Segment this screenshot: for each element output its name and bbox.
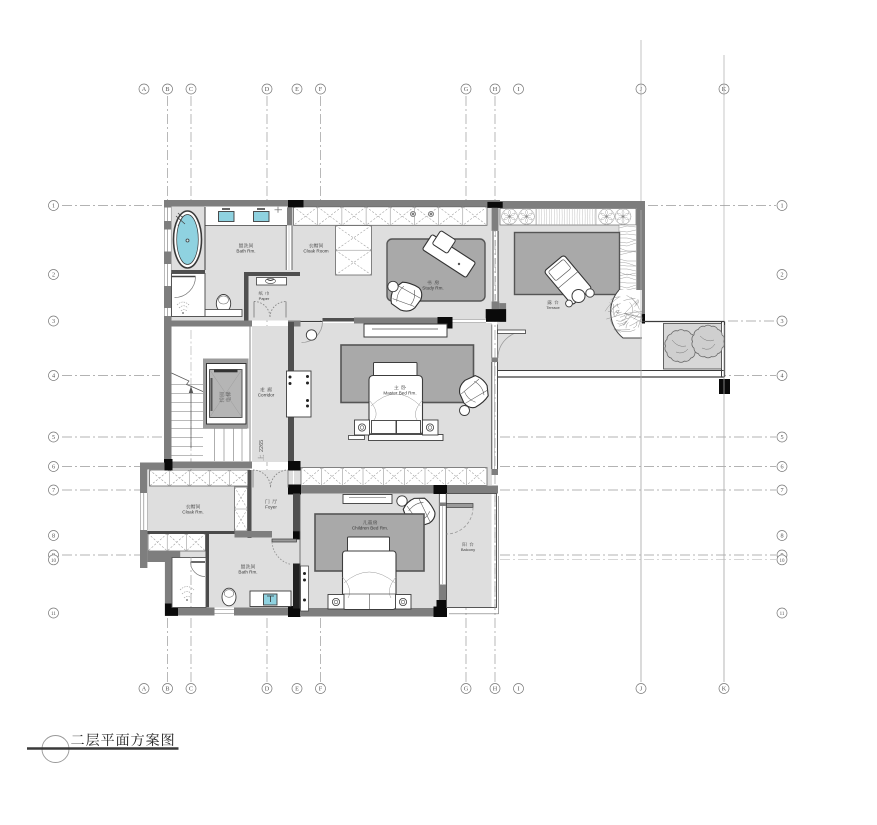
svg-text:1: 1	[780, 203, 783, 210]
svg-text:G: G	[464, 86, 469, 93]
svg-text:3: 3	[780, 318, 783, 325]
svg-text:F: F	[319, 86, 323, 93]
svg-text:Bath Rm.: Bath Rm.	[236, 249, 255, 254]
svg-text:11: 11	[51, 612, 56, 617]
svg-text:Balcony: Balcony	[461, 547, 475, 552]
svg-text:Paper: Paper	[259, 296, 270, 301]
svg-text:B: B	[165, 686, 169, 693]
svg-text:Cloak Rm.: Cloak Rm.	[182, 510, 203, 515]
svg-text:1: 1	[52, 203, 55, 210]
svg-text:E: E	[295, 86, 299, 93]
svg-text:Corridor: Corridor	[258, 393, 275, 398]
svg-text:Terrace: Terrace	[546, 305, 560, 310]
svg-text:D: D	[265, 686, 270, 693]
svg-text:6: 6	[780, 464, 783, 471]
svg-text:F: F	[319, 686, 323, 693]
svg-text:Study Rm.: Study Rm.	[422, 286, 443, 291]
svg-text:2: 2	[52, 272, 55, 279]
svg-text:K: K	[722, 686, 727, 693]
svg-text:6: 6	[52, 464, 55, 471]
svg-text:Master Bed Rm.: Master Bed Rm.	[383, 391, 416, 396]
svg-text:I: I	[517, 86, 519, 93]
svg-text:I: I	[517, 686, 519, 693]
svg-text:11: 11	[780, 612, 785, 617]
svg-text:Cloak Room: Cloak Room	[303, 249, 328, 254]
svg-text:E: E	[295, 686, 299, 693]
svg-text:2265: 2265	[259, 440, 265, 452]
svg-text:7: 7	[52, 487, 55, 494]
svg-text:10: 10	[51, 559, 57, 564]
svg-text:3: 3	[52, 318, 55, 325]
svg-text:10: 10	[780, 559, 786, 564]
svg-text:5: 5	[52, 434, 55, 441]
svg-text:7: 7	[780, 487, 783, 494]
svg-text:A: A	[142, 86, 147, 93]
svg-text:G: G	[464, 686, 469, 693]
svg-text:H: H	[493, 686, 498, 693]
svg-text:5: 5	[780, 434, 783, 441]
svg-text:8: 8	[780, 533, 783, 540]
svg-text:A: A	[142, 686, 147, 693]
svg-text:C: C	[189, 686, 193, 693]
svg-text:Foyer: Foyer	[265, 505, 277, 510]
svg-text:D: D	[265, 86, 270, 93]
svg-text:B: B	[165, 86, 169, 93]
svg-text:8: 8	[52, 533, 55, 540]
svg-text:4: 4	[780, 373, 783, 380]
svg-text:2: 2	[780, 272, 783, 279]
svg-text:Children Bed Rm.: Children Bed Rm.	[352, 526, 388, 531]
svg-text:Bath Rm.: Bath Rm.	[238, 570, 257, 575]
svg-text:4: 4	[52, 373, 55, 380]
svg-text:C: C	[189, 86, 193, 93]
svg-text:H: H	[493, 86, 498, 93]
